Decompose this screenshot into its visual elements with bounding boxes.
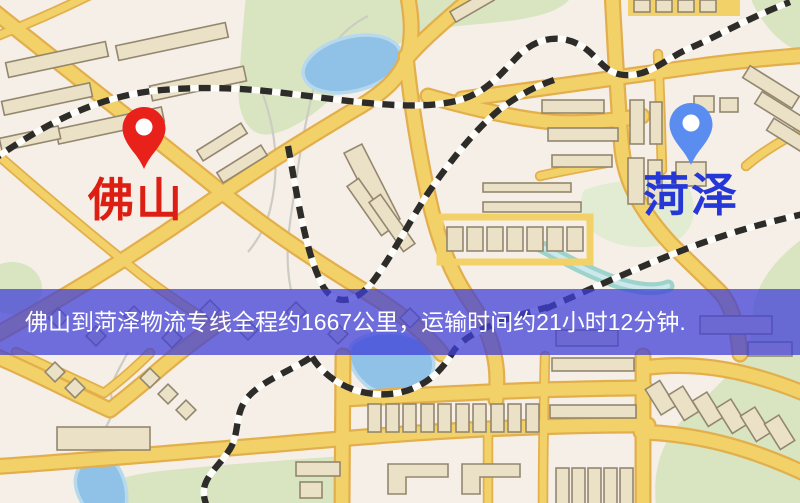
map-background (0, 0, 800, 503)
map-image: 佛山 菏泽 佛山到菏泽物流专线全程约1667公里，运输时间约21小时12分钟. (0, 0, 800, 503)
destination-pin-icon (668, 102, 714, 166)
info-banner: 佛山到菏泽物流专线全程约1667公里，运输时间约21小时12分钟. (0, 289, 800, 355)
destination-city-label: 菏泽 (643, 172, 739, 218)
banner-text: 佛山到菏泽物流专线全程约1667公里，运输时间约21小时12分钟. (0, 289, 800, 355)
origin-pin-icon (121, 106, 167, 170)
origin-city-label: 佛山 (88, 177, 184, 223)
